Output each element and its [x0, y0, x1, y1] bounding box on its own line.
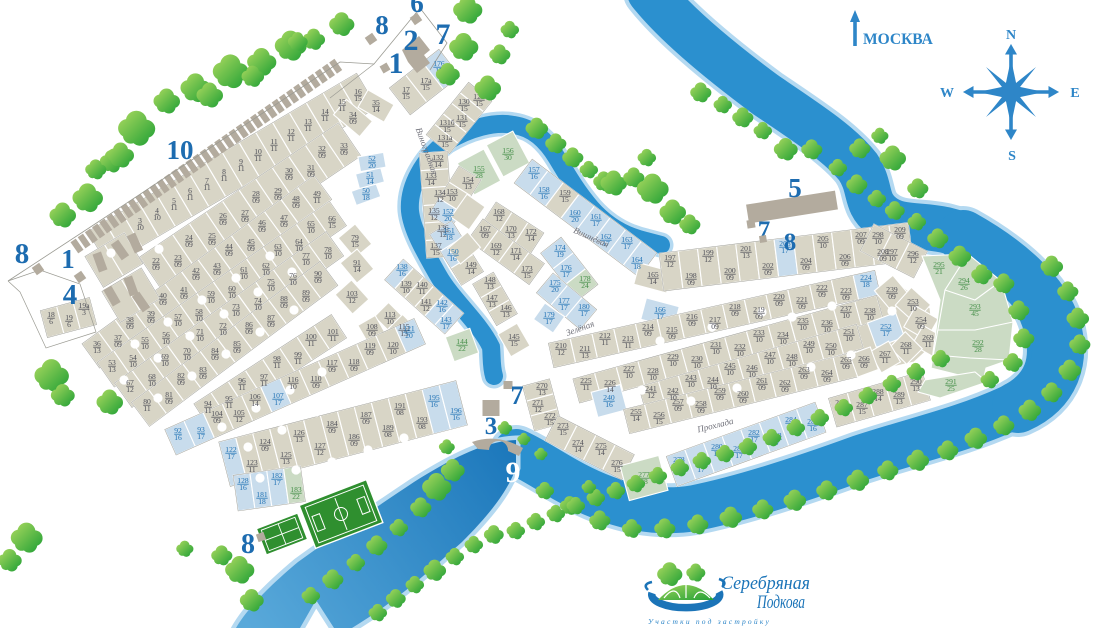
svg-text:2209: 2209	[152, 256, 160, 272]
svg-text:1715: 1715	[402, 85, 410, 101]
svg-text:4009: 4009	[159, 291, 167, 307]
svg-text:3514: 3514	[372, 98, 380, 114]
svg-text:9611: 9611	[238, 376, 246, 392]
svg-text:5220: 5220	[368, 154, 376, 170]
svg-text:6110: 6110	[240, 265, 248, 281]
svg-text:8409: 8409	[211, 346, 219, 362]
svg-text:1615: 1615	[354, 87, 362, 103]
svg-text:2809: 2809	[252, 189, 260, 205]
svg-text:1411: 1411	[321, 107, 329, 123]
svg-text:4709: 4709	[280, 213, 288, 229]
svg-text:8509: 8509	[233, 339, 241, 355]
svg-text:9317: 9317	[197, 425, 205, 441]
svg-text:8809: 8809	[280, 294, 288, 310]
svg-text:N: N	[1006, 28, 1016, 43]
svg-text:1011: 1011	[254, 147, 262, 163]
svg-text:5410: 5410	[129, 353, 137, 369]
svg-text:3: 3	[485, 413, 498, 440]
svg-text:8709: 8709	[267, 313, 275, 329]
svg-text:6910: 6910	[161, 352, 169, 368]
svg-text:6615: 6615	[328, 214, 336, 230]
svg-text:5910: 5910	[207, 289, 215, 305]
svg-text:1: 1	[389, 47, 404, 80]
svg-text:7: 7	[436, 18, 451, 51]
svg-text:2409: 2409	[185, 233, 193, 249]
svg-text:7310: 7310	[232, 302, 240, 318]
svg-text:Участки под застройку: Участки под застройку	[648, 617, 771, 626]
svg-text:3209: 3209	[318, 144, 326, 160]
svg-text:3613: 3613	[93, 339, 101, 355]
svg-text:5510: 5510	[141, 335, 149, 351]
svg-text:1211: 1211	[287, 127, 295, 143]
svg-text:МОСКВА: МОСКВА	[863, 31, 934, 48]
svg-text:2309: 2309	[174, 253, 182, 269]
svg-text:6010: 6010	[228, 284, 236, 300]
svg-text:8: 8	[241, 529, 255, 560]
svg-text:6510: 6510	[307, 219, 315, 235]
svg-text:9114: 9114	[353, 258, 361, 274]
svg-text:Серебряная: Серебряная	[721, 574, 810, 594]
svg-text:2509: 2509	[208, 231, 216, 247]
svg-text:4209: 4209	[192, 266, 200, 282]
svg-text:9009: 9009	[314, 269, 322, 285]
svg-text:8109: 8109	[165, 390, 173, 406]
svg-text:8609: 8609	[245, 320, 253, 336]
svg-text:9216: 9216	[174, 426, 182, 442]
svg-text:6210: 6210	[262, 261, 270, 277]
svg-text:8: 8	[784, 229, 797, 256]
svg-text:4309: 4309	[213, 261, 221, 277]
svg-text:5: 5	[788, 173, 802, 203]
svg-text:1511: 1511	[338, 97, 346, 113]
svg-text:3409: 3409	[349, 110, 357, 126]
svg-text:3109: 3109	[307, 163, 315, 179]
svg-text:Подкова: Подкова	[756, 593, 805, 613]
svg-text:7110: 7110	[196, 327, 204, 343]
svg-text:4409: 4409	[225, 242, 233, 258]
svg-text:W: W	[940, 86, 954, 101]
svg-text:2709: 2709	[241, 208, 249, 224]
svg-text:7510: 7510	[267, 277, 275, 293]
svg-text:2609: 2609	[219, 211, 227, 227]
svg-text:8909: 8909	[302, 288, 310, 304]
svg-text:9911: 9911	[294, 350, 302, 366]
svg-text:1111: 1111	[270, 137, 278, 153]
svg-text:3709: 3709	[114, 333, 122, 349]
svg-text:8: 8	[375, 10, 389, 40]
svg-text:4911: 4911	[313, 189, 321, 205]
svg-text:10: 10	[167, 135, 194, 165]
svg-text:1: 1	[61, 244, 75, 274]
svg-text:7915: 7915	[351, 233, 359, 249]
svg-text:4109: 4109	[180, 285, 188, 301]
svg-text:3909: 3909	[147, 309, 155, 325]
svg-text:4509: 4509	[247, 237, 255, 253]
svg-text:3809: 3809	[126, 315, 134, 331]
svg-text:7410: 7410	[254, 296, 262, 312]
svg-text:5114: 5114	[366, 170, 374, 186]
svg-text:3309: 3309	[340, 141, 348, 157]
svg-text:9711: 9711	[260, 372, 268, 388]
svg-text:5610: 5610	[162, 330, 170, 346]
svg-text:2909: 2909	[274, 186, 282, 202]
svg-text:5313: 5313	[108, 358, 116, 374]
svg-text:5710: 5710	[174, 312, 182, 328]
svg-text:6810: 6810	[148, 372, 156, 388]
svg-text:6712: 6712	[126, 378, 134, 394]
svg-text:7210: 7210	[219, 321, 227, 337]
svg-text:2: 2	[404, 24, 419, 57]
svg-text:7710: 7710	[302, 251, 310, 267]
svg-text:8309: 8309	[199, 365, 207, 381]
svg-text:4809: 4809	[292, 194, 300, 210]
svg-text:9811: 9811	[273, 354, 281, 370]
svg-text:7810: 7810	[324, 245, 332, 261]
svg-text:5810: 5810	[195, 307, 203, 323]
svg-text:4: 4	[63, 279, 78, 311]
svg-text:6310: 6310	[274, 242, 282, 258]
svg-text:5018: 5018	[362, 186, 370, 202]
svg-text:1311: 1311	[304, 117, 312, 133]
svg-text:S: S	[1008, 149, 1016, 164]
svg-text:6: 6	[410, 0, 424, 18]
svg-text:7: 7	[511, 381, 524, 410]
svg-text:8011: 8011	[143, 397, 151, 413]
svg-text:9: 9	[506, 456, 521, 489]
svg-text:7010: 7010	[183, 346, 191, 362]
svg-text:8: 8	[15, 238, 30, 270]
svg-text:3009: 3009	[285, 166, 293, 182]
svg-text:7610: 7610	[289, 271, 297, 287]
svg-text:9511: 9511	[225, 394, 233, 410]
svg-text:8209: 8209	[177, 371, 185, 387]
svg-text:4609: 4609	[258, 218, 266, 234]
svg-text:E: E	[1070, 86, 1079, 101]
